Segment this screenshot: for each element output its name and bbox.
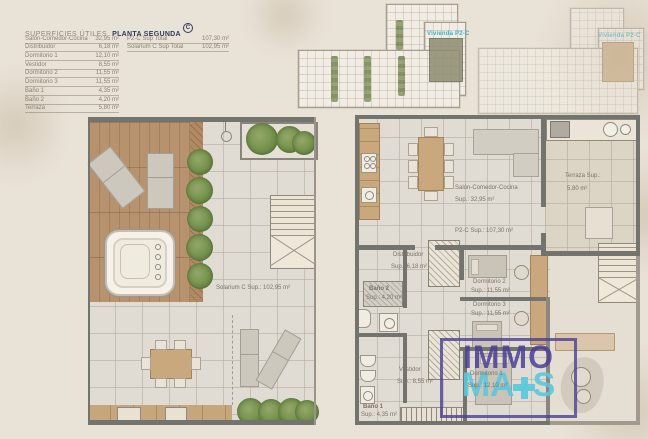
toilet-bowl-icon bbox=[363, 391, 373, 401]
sofa bbox=[473, 129, 539, 155]
wall bbox=[403, 250, 407, 308]
pillow bbox=[471, 259, 479, 275]
chair bbox=[174, 378, 186, 388]
courtyard-hedge bbox=[331, 56, 338, 102]
total-name: Solarium C Sup Total bbox=[127, 44, 183, 51]
desk-chair bbox=[514, 265, 529, 280]
shrub bbox=[186, 234, 213, 261]
jet-icon bbox=[155, 244, 161, 250]
table-row: Dormitorio 112,10 m² bbox=[25, 52, 119, 61]
courtyard-hedge bbox=[398, 56, 405, 96]
room-name: Baño 2 bbox=[25, 97, 44, 104]
washer-drum-icon bbox=[384, 318, 395, 329]
chair bbox=[408, 143, 418, 156]
hall-area-label: Sup.: 6,18 m² bbox=[391, 264, 427, 271]
staircase bbox=[270, 195, 316, 269]
bedroom3-area-label: Sup.: 11,55 m² bbox=[471, 311, 510, 318]
room-area: 5,80 m² bbox=[99, 105, 119, 112]
outdoor-sink-icon bbox=[603, 122, 618, 137]
room-area: 32,95 m² bbox=[95, 36, 119, 43]
shrub bbox=[246, 123, 278, 155]
stair-winder bbox=[271, 236, 315, 267]
chair bbox=[141, 357, 151, 370]
bath2-label: Baño 2 bbox=[369, 286, 389, 293]
wall bbox=[88, 117, 90, 425]
terrace-area-label: 5,80 m² bbox=[567, 186, 587, 193]
dining-table bbox=[150, 349, 192, 379]
room-area: 11,55 m² bbox=[96, 70, 119, 77]
wall bbox=[359, 333, 407, 337]
sofa-chaise bbox=[513, 153, 539, 177]
wall bbox=[88, 117, 316, 122]
room-areas-table: Salón-Comedor-Cocina32,95 m² Distribuido… bbox=[25, 35, 119, 113]
chair bbox=[444, 160, 454, 173]
table-row: Baño 24,20 m² bbox=[25, 96, 119, 105]
pendant-light-icon bbox=[221, 131, 232, 142]
wall bbox=[403, 337, 407, 403]
bedroom1-area-label: Sup.: 12,10 m² bbox=[468, 383, 507, 390]
sink-icon bbox=[361, 187, 377, 203]
table-row: Distribuidor6,18 m² bbox=[25, 44, 119, 53]
bedroom1-label: Dormitorio 1 bbox=[470, 371, 503, 378]
sink-icon bbox=[360, 370, 376, 382]
table-row: Baño 14,35 m² bbox=[25, 87, 119, 96]
jet-icon bbox=[155, 274, 161, 280]
chair bbox=[408, 176, 418, 189]
solarium-floor-plan: Solarium C Sup.: 102,95 m² bbox=[88, 117, 316, 425]
floor-plan-sheet: SUPERFICIES ÚTILESPLANTA SEGUNDAC Salón-… bbox=[0, 0, 648, 439]
room-name: Distribuidor bbox=[25, 44, 55, 51]
room-area: 4,20 m² bbox=[99, 97, 119, 104]
sink-icon bbox=[360, 355, 376, 367]
wall bbox=[355, 115, 359, 425]
room-area: 6,18 m² bbox=[99, 44, 119, 51]
table-row: Solarium C Sup Total102,95 m² bbox=[127, 44, 229, 53]
side-table bbox=[576, 389, 591, 404]
salon-label: Salón-Comedor-Cocina bbox=[455, 185, 518, 192]
room-area: 11,55 m² bbox=[96, 79, 119, 86]
chair bbox=[174, 340, 186, 350]
chair bbox=[155, 340, 167, 350]
total-area: 102,95 m² bbox=[202, 44, 229, 51]
hall-label: Distribuidor bbox=[393, 252, 423, 259]
solarium-area-label: Solarium C Sup.: 102,95 m² bbox=[216, 285, 290, 292]
grill-icon bbox=[550, 121, 570, 138]
utility-box bbox=[585, 207, 613, 239]
stove-icon bbox=[361, 153, 377, 173]
room-name: Vestidor bbox=[25, 62, 47, 69]
bath1-area-label: Sup.: 4,35 m² bbox=[361, 412, 397, 419]
jet-icon bbox=[155, 264, 161, 270]
pillow bbox=[476, 324, 498, 331]
toilet-icon bbox=[357, 309, 371, 328]
chair bbox=[424, 191, 438, 201]
stair-treads bbox=[599, 244, 637, 278]
planta-letter-badge: C bbox=[183, 23, 193, 33]
washing-machine-icon bbox=[379, 313, 398, 332]
burner-icon bbox=[370, 163, 376, 169]
unit-label: Vivienda P2-C bbox=[427, 31, 470, 37]
stair-winder bbox=[599, 278, 637, 301]
table-row: Salón-Comedor-Cocina32,95 m² bbox=[25, 35, 119, 44]
unit-label: Vivienda P2-C bbox=[598, 33, 641, 39]
chair bbox=[444, 143, 454, 156]
total-name: P2-C Sup Total bbox=[127, 36, 167, 43]
highlighted-unit bbox=[429, 38, 463, 82]
bath2-area-label: Sup.: 4,20 m² bbox=[366, 295, 402, 302]
boundary-dashed-line bbox=[232, 315, 233, 405]
terrace-label: Terraza Sup.: bbox=[565, 173, 601, 180]
room-area: 12,10 m² bbox=[95, 53, 119, 60]
stair-treads bbox=[271, 196, 315, 236]
room-area: 4,35 m² bbox=[99, 88, 119, 95]
chair bbox=[424, 127, 438, 137]
jet-icon bbox=[155, 254, 161, 260]
room-name: Baño 1 bbox=[25, 88, 44, 95]
shrub bbox=[187, 149, 213, 175]
plus-icon bbox=[512, 370, 536, 400]
shrub bbox=[187, 206, 213, 232]
total-area: 107,30 m² bbox=[202, 36, 229, 43]
sink-basin-icon bbox=[365, 191, 374, 200]
highlighted-unit bbox=[602, 42, 634, 82]
burner-icon bbox=[370, 156, 376, 162]
wall bbox=[550, 421, 640, 425]
wall bbox=[355, 115, 640, 119]
courtyard-hedge bbox=[364, 56, 371, 102]
wall bbox=[355, 421, 550, 425]
shrub bbox=[187, 263, 213, 289]
toilet-icon bbox=[360, 386, 375, 404]
wall bbox=[314, 117, 316, 425]
room-name: Dormitorio 3 bbox=[25, 79, 58, 86]
bath1-label: Baño 1 bbox=[363, 404, 383, 411]
dining-table bbox=[418, 137, 444, 191]
table-row: P2-C Sup Total107,30 m² bbox=[127, 35, 229, 44]
hot-tub-basin bbox=[120, 244, 150, 279]
outdoor-burner-icon bbox=[620, 124, 631, 135]
room-name: Dormitorio 2 bbox=[25, 70, 58, 77]
wall bbox=[460, 250, 464, 280]
bed bbox=[468, 255, 507, 278]
courtyard-hedge bbox=[396, 20, 403, 50]
wall bbox=[541, 115, 546, 207]
building-overview-plan-a: Vivienda P2-C bbox=[298, 4, 470, 106]
bedroom2-label: Dormitorio 2 bbox=[473, 279, 506, 286]
wall bbox=[636, 115, 640, 255]
room-area: 8,55 m² bbox=[99, 62, 119, 69]
salon-area-label: Sup.: 32,95 m² bbox=[455, 197, 494, 204]
room-name: Terraza bbox=[25, 105, 45, 112]
logo-mas-text: MA S bbox=[443, 370, 574, 400]
table-row: Dormitorio 211,55 m² bbox=[25, 70, 119, 79]
bedroom3-label: Dormitorio 3 bbox=[473, 302, 506, 309]
wall bbox=[435, 245, 541, 250]
table-row: Terraza5,80 m² bbox=[25, 105, 119, 114]
room-name: Dormitorio 1 bbox=[25, 53, 58, 60]
wall bbox=[88, 420, 316, 425]
wall bbox=[636, 255, 640, 425]
logo-s-letter: S bbox=[533, 370, 556, 400]
chair bbox=[155, 378, 167, 388]
desk-chair bbox=[514, 311, 529, 326]
table-row: Dormitorio 311,55 m² bbox=[25, 78, 119, 87]
unit-total-label: P2-C Sup.: 107,30 m² bbox=[455, 228, 513, 235]
bedroom2-area-label: Sup.: 11,55 m² bbox=[471, 288, 510, 295]
building-overview-plan-b: Vivienda P2-C bbox=[478, 8, 648, 112]
chair bbox=[408, 160, 418, 173]
shrub bbox=[292, 131, 316, 155]
totals-table: P2-C Sup Total107,30 m² Solarium C Sup T… bbox=[127, 35, 229, 52]
chair bbox=[444, 176, 454, 189]
shower bbox=[363, 281, 403, 307]
sun-lounger bbox=[147, 153, 174, 209]
shrub bbox=[186, 177, 213, 204]
immomas-logo: IMMO MA S bbox=[440, 338, 577, 418]
room-name: Salón-Comedor-Cocina bbox=[25, 36, 88, 43]
table-row: Vestidor8,55 m² bbox=[25, 61, 119, 70]
chair bbox=[191, 357, 201, 370]
wall bbox=[460, 297, 546, 301]
wall bbox=[541, 251, 640, 256]
hot-tub bbox=[105, 230, 175, 296]
